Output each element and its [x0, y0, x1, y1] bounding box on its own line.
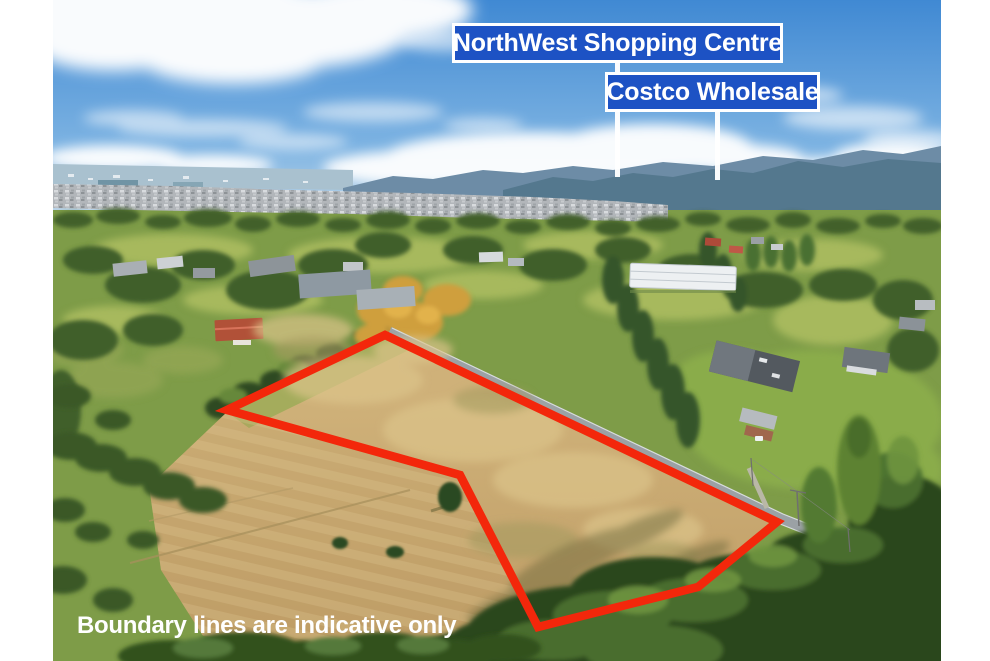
- pointer-line-costco: [715, 112, 720, 180]
- page: NorthWest Shopping Centre Costco Wholesa…: [0, 0, 990, 661]
- aerial-photo: NorthWest Shopping Centre Costco Wholesa…: [53, 0, 941, 661]
- label-costco-wholesale: Costco Wholesale: [605, 72, 820, 112]
- label-northwest-shopping-centre: NorthWest Shopping Centre: [452, 23, 783, 63]
- boundary-disclaimer: Boundary lines are indicative only: [77, 612, 456, 640]
